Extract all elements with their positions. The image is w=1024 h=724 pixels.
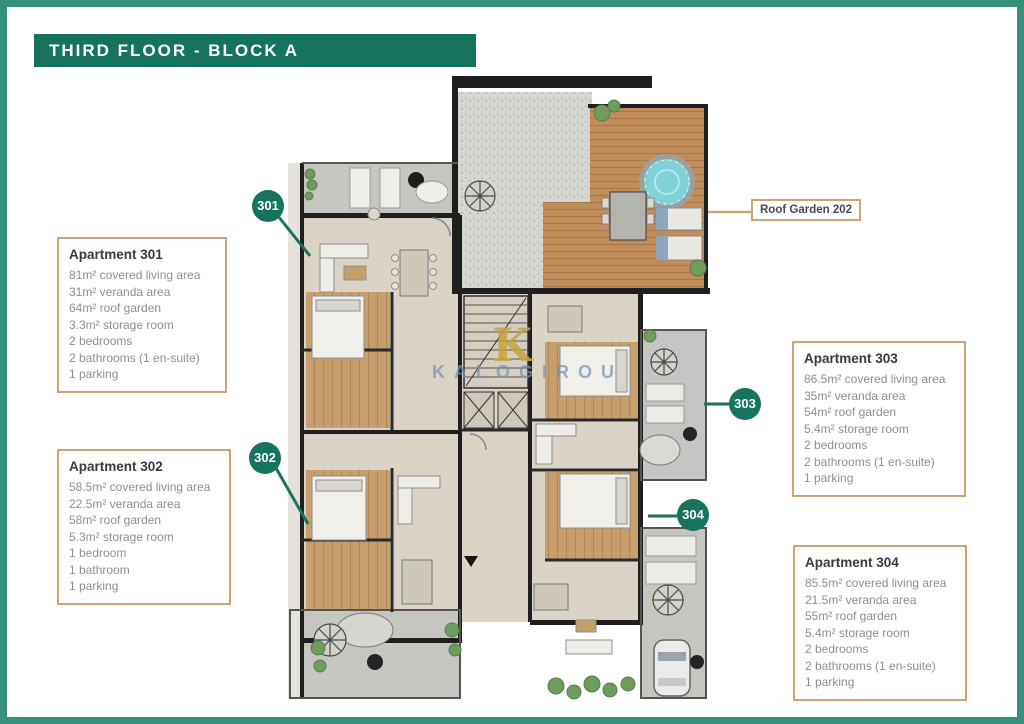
apartment-302-line: 1 parking (69, 578, 219, 595)
apartment-302-line: 5.3m² storage room (69, 529, 219, 546)
apartment-303-title: Apartment 303 (804, 351, 954, 366)
apartment-304-line: 85.5m² covered living area (805, 575, 955, 592)
apartment-303-line: 35m² veranda area (804, 388, 954, 405)
apartment-303-line: 54m² roof garden (804, 404, 954, 421)
deck-dining-table (602, 192, 654, 240)
unit-badge-303: 303 (729, 388, 761, 420)
apartment-301-title: Apartment 301 (69, 247, 215, 262)
apartment-302-line: 1 bedroom (69, 545, 219, 562)
apartment-304-title: Apartment 304 (805, 555, 955, 570)
apartment-301-line: 2 bedrooms (69, 333, 215, 350)
apartment-303-line: 86.5m² covered living area (804, 371, 954, 388)
unit-badge-302: 302 (249, 442, 281, 474)
apartment-304-line: 1 parking (805, 674, 955, 691)
unit-badge-301: 301 (252, 190, 284, 222)
apartment-301-line: 2 bathrooms (1 en-suite) (69, 350, 215, 367)
apartment-301-line: 64m² roof garden (69, 300, 215, 317)
floorplan-page: K KALOGIROU THIRD FLOOR - BLOCK A Apartm… (0, 0, 1024, 724)
watermark-text: KALOGIROU (432, 362, 623, 383)
page-title: THIRD FLOOR - BLOCK A (34, 34, 476, 67)
apartment-303-line: 2 bathrooms (1 en-suite) (804, 454, 954, 471)
apartment-301-info-box: Apartment 301 81m² covered living area 3… (57, 237, 227, 393)
apartment-304-line: 2 bathrooms (1 en-suite) (805, 658, 955, 675)
apartment-303-line: 2 bedrooms (804, 437, 954, 454)
apartment-301-line: 81m² covered living area (69, 267, 215, 284)
apartment-302-title: Apartment 302 (69, 459, 219, 474)
apartment-303-info-box: Apartment 303 86.5m² covered living area… (792, 341, 966, 497)
roof-garden-label: Roof Garden 202 (751, 199, 861, 221)
apartment-304-line: 2 bedrooms (805, 641, 955, 658)
unit-badge-304: 304 (677, 499, 709, 531)
apartment-302-line: 22.5m² veranda area (69, 496, 219, 513)
apartment-304-line: 55m² roof garden (805, 608, 955, 625)
apartment-301-line: 31m² veranda area (69, 284, 215, 301)
apartment-301-line: 3.3m² storage room (69, 317, 215, 334)
apartment-302-line: 58m² roof garden (69, 512, 219, 529)
apartment-301-line: 1 parking (69, 366, 215, 383)
apartment-302-line: 1 bathroom (69, 562, 219, 579)
apartment-304-info-box: Apartment 304 85.5m² covered living area… (793, 545, 967, 701)
apartment-302-line: 58.5m² covered living area (69, 479, 219, 496)
apartment-302-info-box: Apartment 302 58.5m² covered living area… (57, 449, 231, 605)
apartment-304-line: 5.4m² storage room (805, 625, 955, 642)
apartment-304-line: 21.5m² veranda area (805, 592, 955, 609)
apartment-303-line: 1 parking (804, 470, 954, 487)
apartment-303-line: 5.4m² storage room (804, 421, 954, 438)
